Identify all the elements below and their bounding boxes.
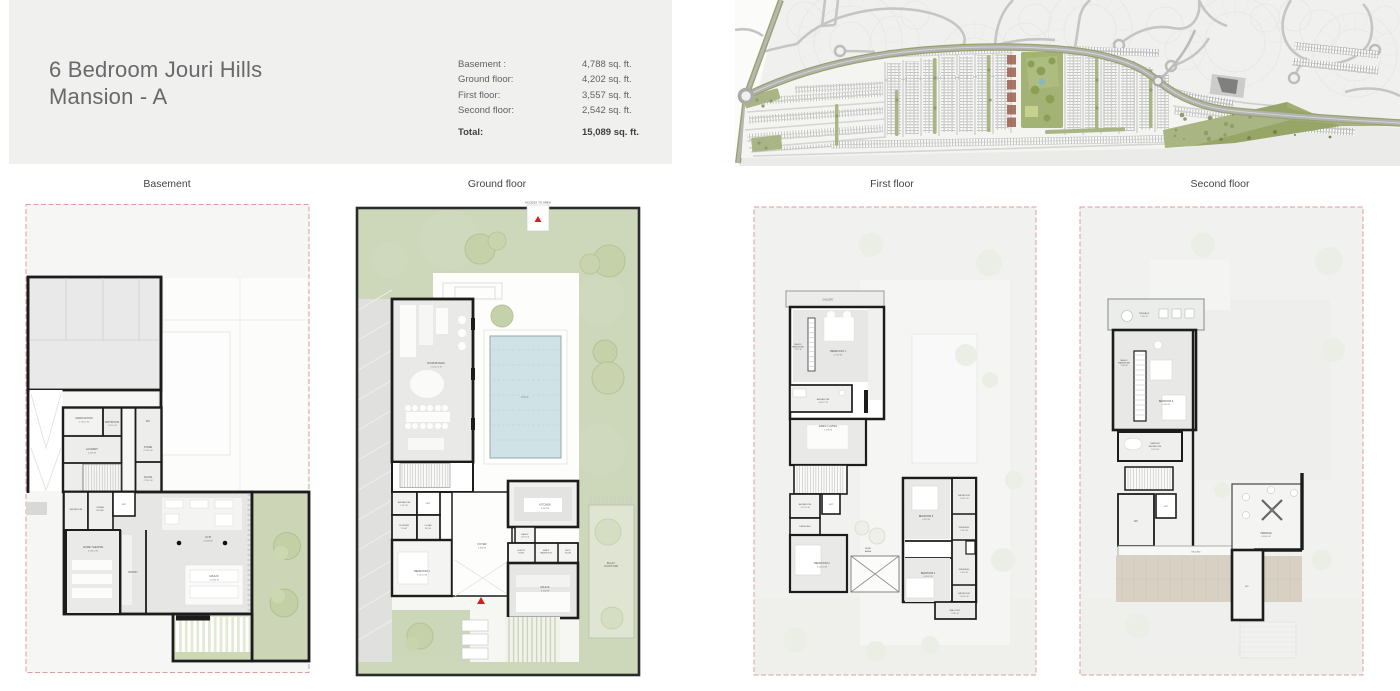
svg-text:HOME THEATRE: HOME THEATRE: [83, 545, 104, 549]
svg-text:DRESSING: DRESSING: [799, 526, 811, 528]
svg-text:LIFT: LIFT: [426, 503, 431, 505]
svg-text:POOL: POOL: [521, 395, 530, 399]
svg-text:FAMILY LIVING: FAMILY LIVING: [819, 424, 837, 428]
svg-text:7.5X2.5 M: 7.5X2.5 M: [1151, 449, 1160, 451]
svg-text:STORE: STORE: [144, 446, 153, 449]
svg-text:WC: WC: [146, 420, 150, 423]
svg-text:6.1X8.2 M: 6.1X8.2 M: [88, 550, 98, 552]
svg-text:2.7X1.9 M: 2.7X1.9 M: [800, 507, 809, 509]
svg-text:PANTRY: PANTRY: [128, 571, 138, 574]
svg-text:AREA: AREA: [865, 550, 871, 553]
svg-text:HALLWAY: HALLWAY: [1191, 551, 1201, 554]
svg-text:MAJLIS: MAJLIS: [1120, 359, 1128, 362]
svg-text:POWDER: POWDER: [399, 525, 409, 527]
svg-text:BATHROOM: BATHROOM: [398, 501, 411, 504]
svg-text:1.9X2.4 M: 1.9X2.4 M: [959, 596, 968, 598]
svg-text:BATHROOM: BATHROOM: [958, 592, 970, 595]
svg-text:BATHROOM: BATHROOM: [958, 494, 970, 497]
svg-text:KITCHEN: KITCHEN: [539, 503, 551, 507]
svg-text:BATHROOM: BATHROOM: [70, 508, 83, 511]
svg-text:WASHROOM: WASHROOM: [540, 552, 552, 555]
svg-text:WARDROBE: WARDROBE: [792, 346, 804, 349]
svg-text:7.1X6 M: 7.1X6 M: [824, 429, 832, 431]
svg-text:CLOAK: CLOAK: [424, 524, 432, 527]
svg-text:BEDROOM 1: BEDROOM 1: [414, 569, 430, 573]
svg-text:4.6X2.7 M: 4.6X2.7 M: [818, 402, 827, 404]
svg-text:ACCESS TO AREA: ACCESS TO AREA: [525, 201, 551, 205]
svg-text:1.9X2.7 M: 1.9X2.7 M: [959, 498, 968, 500]
svg-text:BEDROOM 6: BEDROOM 6: [1159, 400, 1174, 403]
svg-text:3.6X1 M: 3.6X1 M: [951, 613, 959, 615]
svg-text:2.5X8 M: 2.5X8 M: [1121, 365, 1128, 367]
svg-text:BATHROOM: BATHROOM: [817, 398, 830, 401]
svg-text:3.7X4.2 M: 3.7X4.2 M: [79, 421, 89, 423]
svg-text:4.7X7 M: 4.7X7 M: [834, 354, 842, 356]
svg-text:7.5X2 M: 7.5X2 M: [1140, 316, 1148, 318]
svg-text:TERRACE: TERRACE: [1260, 532, 1272, 535]
svg-text:ROOM: ROOM: [425, 528, 432, 530]
svg-text:TOILET: TOILET: [518, 553, 525, 555]
svg-text:2.5X7 M: 2.5X7 M: [795, 349, 802, 351]
svg-text:MAJLIS: MAJLIS: [209, 574, 218, 578]
svg-text:MAIDS: MAIDS: [543, 549, 550, 552]
svg-text:DRESSING: DRESSING: [959, 527, 970, 529]
svg-text:1.9X2 M: 1.9X2 M: [960, 530, 968, 532]
svg-text:11.8X9 M: 11.8X9 M: [203, 540, 212, 542]
svg-text:2.4X5 M: 2.4X5 M: [88, 452, 96, 454]
svg-text:11.8X6 M: 11.8X6 M: [209, 579, 218, 581]
svg-text:1.9X2 M: 1.9X2 M: [400, 505, 408, 507]
svg-text:MAJLIS: MAJLIS: [794, 343, 802, 346]
svg-text:TERRACE: TERRACE: [1139, 312, 1150, 315]
svg-text:WARDROBE: WARDROBE: [1118, 362, 1130, 365]
svg-text:6.3X6.6 M: 6.3X6.6 M: [1261, 536, 1270, 538]
svg-text:FOYER: FOYER: [478, 542, 487, 546]
svg-text:7.1X12.2 M: 7.1X12.2 M: [430, 366, 441, 368]
svg-text:4.4X4.6 M: 4.4X4.6 M: [923, 576, 932, 578]
svg-text:LIFT: LIFT: [1164, 506, 1169, 508]
svg-text:6.5X5 M: 6.5X5 M: [541, 590, 549, 592]
svg-text:BALCONY: BALCONY: [950, 609, 961, 612]
svg-text:LIFT: LIFT: [122, 504, 127, 506]
svg-text:5.1X4.6 M: 5.1X4.6 M: [817, 566, 827, 568]
svg-text:DOWNSTAIRS: DOWNSTAIRS: [427, 361, 445, 365]
svg-text:MAJLIS: MAJLIS: [540, 585, 549, 589]
svg-text:HANDY: HANDY: [521, 533, 529, 536]
svg-text:BATHROOM: BATHROOM: [799, 503, 812, 506]
svg-text:BEDROOM 4: BEDROOM 4: [921, 572, 936, 575]
svg-text:LIFT: LIFT: [829, 504, 834, 506]
svg-text:DRESSING: DRESSING: [959, 569, 970, 571]
svg-text:1.9X2 M: 1.9X2 M: [960, 572, 968, 574]
svg-text:STEAM: STEAM: [96, 506, 104, 509]
svg-text:6.5X4 M: 6.5X4 M: [541, 508, 549, 510]
svg-text:2.9X8 M: 2.9X8 M: [478, 547, 486, 549]
svg-text:1.7X2.5 M: 1.7X2.5 M: [107, 425, 116, 427]
svg-text:BATHROOM: BATHROOM: [105, 421, 119, 424]
svg-text:4.1X6 M: 4.1X6 M: [1162, 404, 1170, 406]
svg-text:BEDROOM 1: BEDROOM 1: [830, 349, 846, 353]
svg-text:2.7X2.4 M: 2.7X2.4 M: [143, 480, 152, 482]
svg-text:4.4X5 M: 4.4X5 M: [922, 519, 930, 521]
svg-text:BUNK: BUNK: [865, 548, 872, 550]
svg-text:BUGGY: BUGGY: [607, 563, 616, 565]
svg-text:WC: WC: [1245, 586, 1249, 588]
svg-text:1.8X1.9 M: 1.8X1.9 M: [521, 537, 530, 539]
svg-text:MAIDS ROOM: MAIDS ROOM: [75, 416, 92, 420]
svg-text:BATHROOM: BATHROOM: [1149, 445, 1162, 448]
svg-text:LAUNDRY: LAUNDRY: [86, 447, 99, 451]
svg-text:TOILET: TOILET: [401, 528, 409, 530]
svg-text:SAUNA: SAUNA: [144, 476, 153, 479]
svg-text:COURTYARD: COURTYARD: [604, 565, 619, 568]
svg-text:MASTER: MASTER: [1150, 442, 1160, 445]
svg-text:GYM: GYM: [205, 535, 211, 539]
svg-text:WC: WC: [1134, 520, 1138, 523]
svg-text:BEDROOM 5: BEDROOM 5: [919, 515, 934, 518]
svg-text:ROOM: ROOM: [565, 553, 571, 555]
svg-text:2.7X2.6 M: 2.7X2.6 M: [143, 450, 152, 452]
svg-text:BEDROOM 2: BEDROOM 2: [814, 561, 830, 565]
svg-text:5.1X4.6 M: 5.1X4.6 M: [417, 574, 427, 576]
svg-text:ROOM: ROOM: [97, 510, 104, 512]
svg-text:GALLERY: GALLERY: [823, 299, 834, 302]
